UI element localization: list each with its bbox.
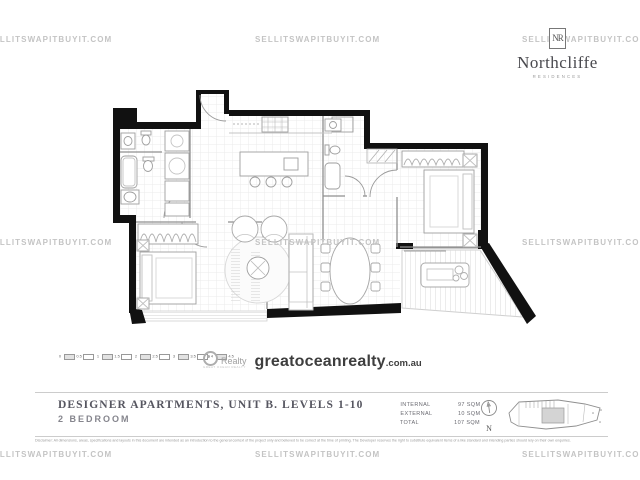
realty-sub-label: GREAT OCEAN REALTY xyxy=(203,366,246,369)
table-row: EXTERNAL 10 SQM xyxy=(399,411,481,420)
scale-segment xyxy=(140,354,151,360)
scale-segment xyxy=(178,354,189,360)
bedroom-1-furniture xyxy=(137,224,198,309)
scale-label: 0.5 xyxy=(76,355,81,359)
scale-label: 1.5 xyxy=(114,355,119,359)
watermark-text: SELLITSWAPITBUYIT.COM xyxy=(255,450,380,459)
developer-logo: NR Northcliffe RESIDENCES xyxy=(505,28,610,81)
scale-segment xyxy=(83,354,94,360)
balcony-lounge xyxy=(421,263,469,287)
divider-top xyxy=(35,392,608,393)
scale-label: 1 xyxy=(95,355,100,359)
floorplan-brochure-page: { "watermark": { "text": "SELLITSWAPITBU… xyxy=(0,0,640,480)
area-label: INTERNAL xyxy=(400,402,430,410)
watermark-text: SELLITSWAPITBUYIT.COM xyxy=(522,450,640,459)
watermark-text: SELLITSWAPITBUYIT.COM xyxy=(0,35,112,44)
area-value: 97 SQM xyxy=(458,402,480,410)
north-indicator: N xyxy=(480,399,498,433)
divider-bottom xyxy=(35,436,608,437)
watermark-text: SELLITSWAPITBUYIT.COM xyxy=(255,35,380,44)
north-label: N xyxy=(480,424,498,433)
agency-tld: .com.au xyxy=(386,358,422,369)
table-row: INTERNAL 97 SQM xyxy=(399,402,481,411)
page-title: DESIGNER APARTMENTS, UNIT B. LEVELS 1-10 xyxy=(58,399,364,411)
realty-label: Realty xyxy=(221,356,247,366)
scale-segment xyxy=(121,354,132,360)
developer-tagline: RESIDENCES xyxy=(520,75,596,79)
scale-segment xyxy=(159,354,170,360)
scale-segment xyxy=(64,354,75,360)
area-table: INTERNAL 97 SQM EXTERNAL 10 SQM TOTAL 10… xyxy=(399,402,481,429)
scale-segment xyxy=(102,354,113,360)
table-row: TOTAL 107 SQM xyxy=(399,420,481,429)
terrace-decking xyxy=(140,311,267,321)
watermark-text: SELLITSWAPITBUYIT.COM xyxy=(0,238,112,247)
watermark-text: SELLITSWAPITBUYIT.COM xyxy=(0,450,112,459)
realty-globe-icon xyxy=(203,351,218,366)
developer-name: Northcliffe xyxy=(505,53,610,73)
scale-label: 2.5 xyxy=(152,355,157,359)
area-value: 107 SQM xyxy=(454,420,480,428)
watermark-text: SELLITSWAPITBUYIT.COM xyxy=(522,238,640,247)
agency-domain: greatoceanrealty xyxy=(255,354,386,370)
scale-label: 2 xyxy=(133,355,138,359)
scale-label: 3 xyxy=(171,355,176,359)
watermark-text: SELLITSWAPITBUYIT.COM xyxy=(255,238,380,247)
area-value: 10 SQM xyxy=(458,411,480,419)
scale-label: 0 xyxy=(57,355,62,359)
scale-label: 3.5 xyxy=(190,355,195,359)
area-label: TOTAL xyxy=(400,420,419,428)
building-key-plan xyxy=(506,398,604,434)
page-subtitle: 2 BEDROOM xyxy=(58,414,131,424)
area-label: EXTERNAL xyxy=(400,411,432,419)
nr-monogram-icon: NR xyxy=(549,28,566,49)
north-arrow-icon xyxy=(480,399,498,417)
agency-logo: Realty GREAT OCEAN REALTY greatoceanreal… xyxy=(203,351,422,370)
disclaimer-text: Disclaimer: All dimensions, areas, speci… xyxy=(35,439,578,443)
